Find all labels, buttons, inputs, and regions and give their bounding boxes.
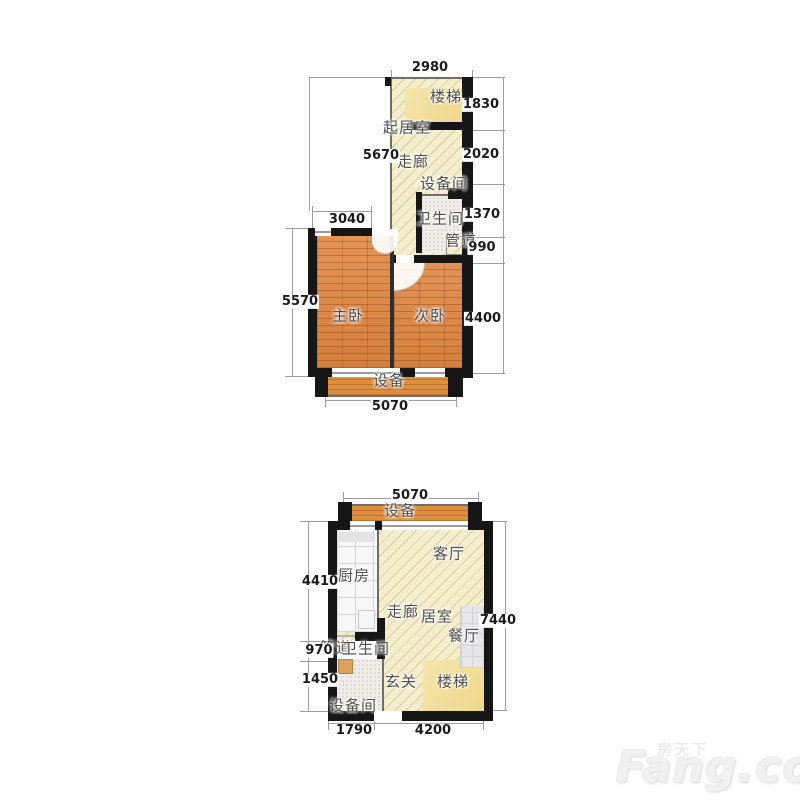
upper-top-left-stub <box>385 77 391 86</box>
kitchen-label: 厨房 <box>338 565 370 586</box>
dim-5670: 5670 <box>362 149 400 163</box>
dim-7440: 7440 <box>479 614 517 628</box>
lower-equipment-room-label: 设备间 <box>329 695 377 716</box>
entrance-hall-label: 玄关 <box>385 671 417 692</box>
lower-balcony-left-block <box>338 502 352 523</box>
upper-equipment-balcony-label: 设备 <box>373 370 405 391</box>
dim-upper-5070: 5070 <box>371 400 409 414</box>
dining-room-label: 餐厅 <box>448 625 480 646</box>
kitchen-sink <box>358 610 375 629</box>
dim-5570: 5570 <box>281 295 319 309</box>
lower-ext-right-top <box>493 521 507 522</box>
master-door-arc <box>372 229 398 254</box>
bathroom-right-wall-line <box>382 659 384 711</box>
bottom-window-2-line <box>415 372 445 374</box>
room-label: 居室 <box>421 606 453 627</box>
upper-ext-2020 <box>473 184 505 185</box>
upper-ext-1830 <box>473 130 505 131</box>
dim-4200: 4200 <box>414 724 452 738</box>
bathroom-washbasin <box>338 659 353 674</box>
upper-bathroom-label: 卫生间 <box>416 208 464 229</box>
kitchen-right-wall-line <box>377 530 379 632</box>
lower-balcony-right-block <box>468 502 482 523</box>
upper-ext-990 <box>473 263 505 264</box>
dim-2020: 2020 <box>462 148 500 162</box>
lower-stairs-label: 楼梯 <box>437 671 469 692</box>
living-room-label: 客厅 <box>433 543 465 564</box>
upper-living-room-label: 起居室 <box>383 117 431 138</box>
lower-left-wall <box>328 521 337 721</box>
upper-ext-1370 <box>473 237 505 238</box>
dim-1450: 1450 <box>301 673 339 687</box>
lower-ext-right-bot <box>493 710 507 711</box>
dim-3040-tick-l <box>312 206 313 228</box>
dim-1830: 1830 <box>462 98 500 112</box>
second-bedroom-door-gap <box>396 255 414 263</box>
dim-lower-5070: 5070 <box>391 489 429 503</box>
upper-top-window-line <box>388 77 473 79</box>
dim-990: 990 <box>467 241 496 255</box>
lower-top-window-2-line <box>382 525 468 527</box>
fang-watermark-logo: Fang.com <box>616 742 800 793</box>
dim-4400: 4400 <box>464 312 502 326</box>
entry-door-gap <box>374 711 402 721</box>
floor-plan-image: { "upper_plan": { "rooms": { "stairs": "… <box>0 0 800 800</box>
upper-dim-left-line <box>309 77 310 211</box>
upper-equipment-room-label: 设备间 <box>420 173 468 194</box>
upper-bathroom-top-line <box>420 194 450 196</box>
upper-ext-4400 <box>473 373 505 374</box>
dim-3040: 3040 <box>328 213 366 227</box>
master-top-window-line <box>315 231 331 233</box>
lower-bathroom-label: 卫生间 <box>342 638 390 659</box>
upper-corridor-label: 走廊 <box>397 151 429 172</box>
upper-stairs-label: 楼梯 <box>430 86 462 107</box>
upper-balcony-left-block <box>315 373 328 397</box>
dim-1370: 1370 <box>463 208 501 222</box>
second-bedroom-label: 次卧 <box>414 305 446 326</box>
lower-corridor-label: 走廊 <box>387 601 419 622</box>
dim-2980: 2980 <box>411 61 449 75</box>
lower-ext-1450 <box>300 711 330 712</box>
dim-970: 970 <box>304 644 333 658</box>
upper-balcony-right-block <box>448 373 463 397</box>
kitchen-counter <box>337 532 375 542</box>
dim-1790: 1790 <box>335 724 373 738</box>
master-bedroom-label: 主卧 <box>332 305 364 326</box>
upper-balcony-bottom-line <box>315 395 463 397</box>
upper-dim-right-line <box>503 77 504 373</box>
dim-5570-ext-top <box>285 228 310 229</box>
dim-4410: 4410 <box>301 575 339 589</box>
lower-top-window-1-line <box>350 525 375 527</box>
lower-ext-top <box>300 521 330 522</box>
dim-3040-tick-r <box>371 206 372 228</box>
